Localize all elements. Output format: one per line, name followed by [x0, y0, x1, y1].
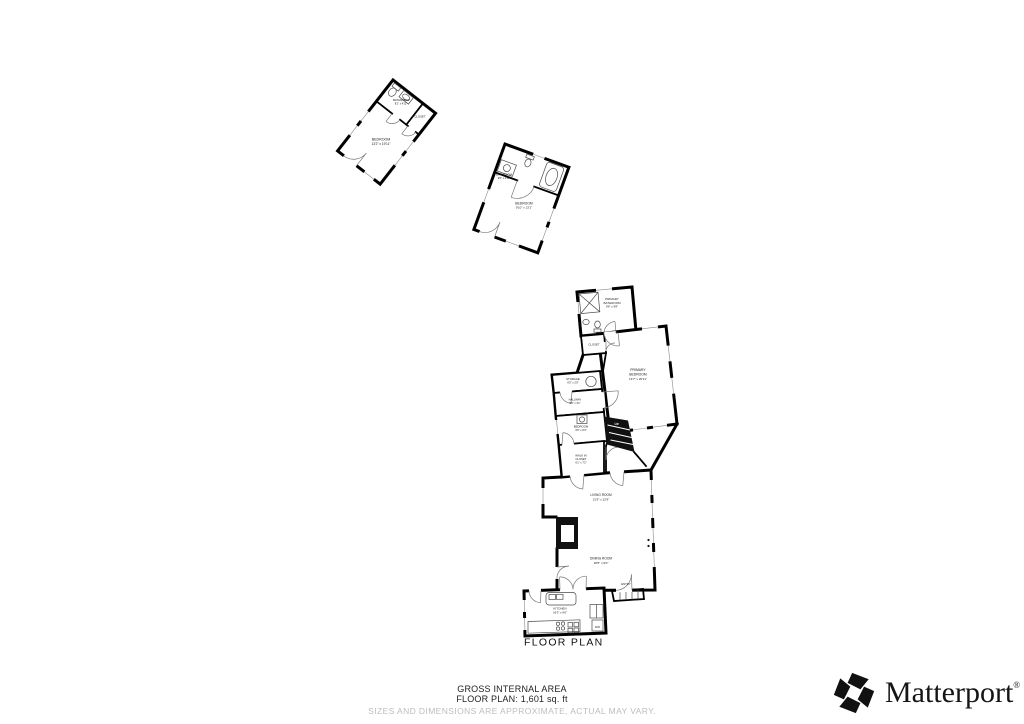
room-label: LIVING ROOM	[590, 493, 612, 497]
room-label: HALLWAY	[569, 398, 582, 402]
room-dims: 21'9" x 22'9"	[593, 498, 609, 502]
floor-plan-page: BATHROOM 8'2" x 4'11" CLOSET BEDROOM 13'…	[0, 0, 1024, 724]
room-dims: 18'5" x 9'0"	[594, 561, 609, 565]
room-dims: 6'1" x 7'2"	[575, 461, 586, 465]
room-dims: 9'6" x 4'11"	[498, 176, 511, 180]
stairs-up-label: UP	[614, 422, 619, 427]
room-label: BATHROOM	[496, 173, 513, 177]
room-dims: 6'5" x 2'9"	[567, 381, 578, 385]
matterport-logo: Matterport®	[831, 671, 1020, 715]
structure-adu1	[338, 80, 436, 184]
room-dims: 9'6" x 9'8"	[606, 305, 618, 309]
room-dims: 9'10" x 13'1"	[516, 206, 532, 210]
room-label: ENTRY	[621, 582, 631, 586]
room-label: CLOSET	[575, 457, 586, 461]
bedroom3-sink-fixture	[577, 415, 587, 424]
room-dims: 9'6" x 6'3"	[575, 428, 586, 432]
kitchen-counter-fixture	[528, 620, 580, 633]
wall-dot	[647, 545, 649, 547]
floor-plan-caption: FLOOR PLAN	[524, 637, 604, 649]
brand-wordmark: Matterport	[885, 676, 1013, 709]
floor-plan-svg: BATHROOM 8'2" x 4'11" CLOSET BEDROOM 13'…	[0, 0, 1024, 724]
room-label: CLOSET	[588, 343, 599, 347]
fridge-fixture	[590, 605, 603, 619]
room-label: DINING ROOM	[590, 557, 612, 561]
room-dims: 9'9" x 4'1"	[569, 401, 580, 405]
structure-adu2	[474, 144, 569, 253]
kitchen-island-fixture	[546, 593, 576, 606]
main-house	[524, 287, 677, 636]
shower-fixture	[579, 292, 600, 313]
room-dims: 13'2" x 19'11"	[371, 142, 390, 146]
room-label: BEDROOM	[574, 425, 589, 429]
room-label: STORAGE	[566, 377, 580, 381]
room-label: BEDROOM	[372, 138, 391, 142]
room-label: BATHROOM	[393, 98, 410, 102]
toilet-fixture	[594, 321, 601, 332]
room-dims: 16'3" x 9'6"	[553, 611, 567, 615]
room-dims: 8'2" x 4'11"	[395, 102, 408, 106]
wall-dot	[647, 539, 649, 541]
registered-mark: ®	[1013, 680, 1020, 690]
fireplace	[556, 517, 578, 549]
room-label: CLOSET	[414, 115, 425, 119]
dishwasher-label: DW	[595, 625, 600, 629]
room-label: BEDROOM	[629, 372, 647, 376]
matterport-pinwheel-icon	[831, 671, 877, 715]
room-label: PRIMARY	[630, 368, 646, 372]
sink-fixture	[583, 319, 589, 324]
room-dims: 14'7" x 20'11"	[629, 377, 647, 381]
